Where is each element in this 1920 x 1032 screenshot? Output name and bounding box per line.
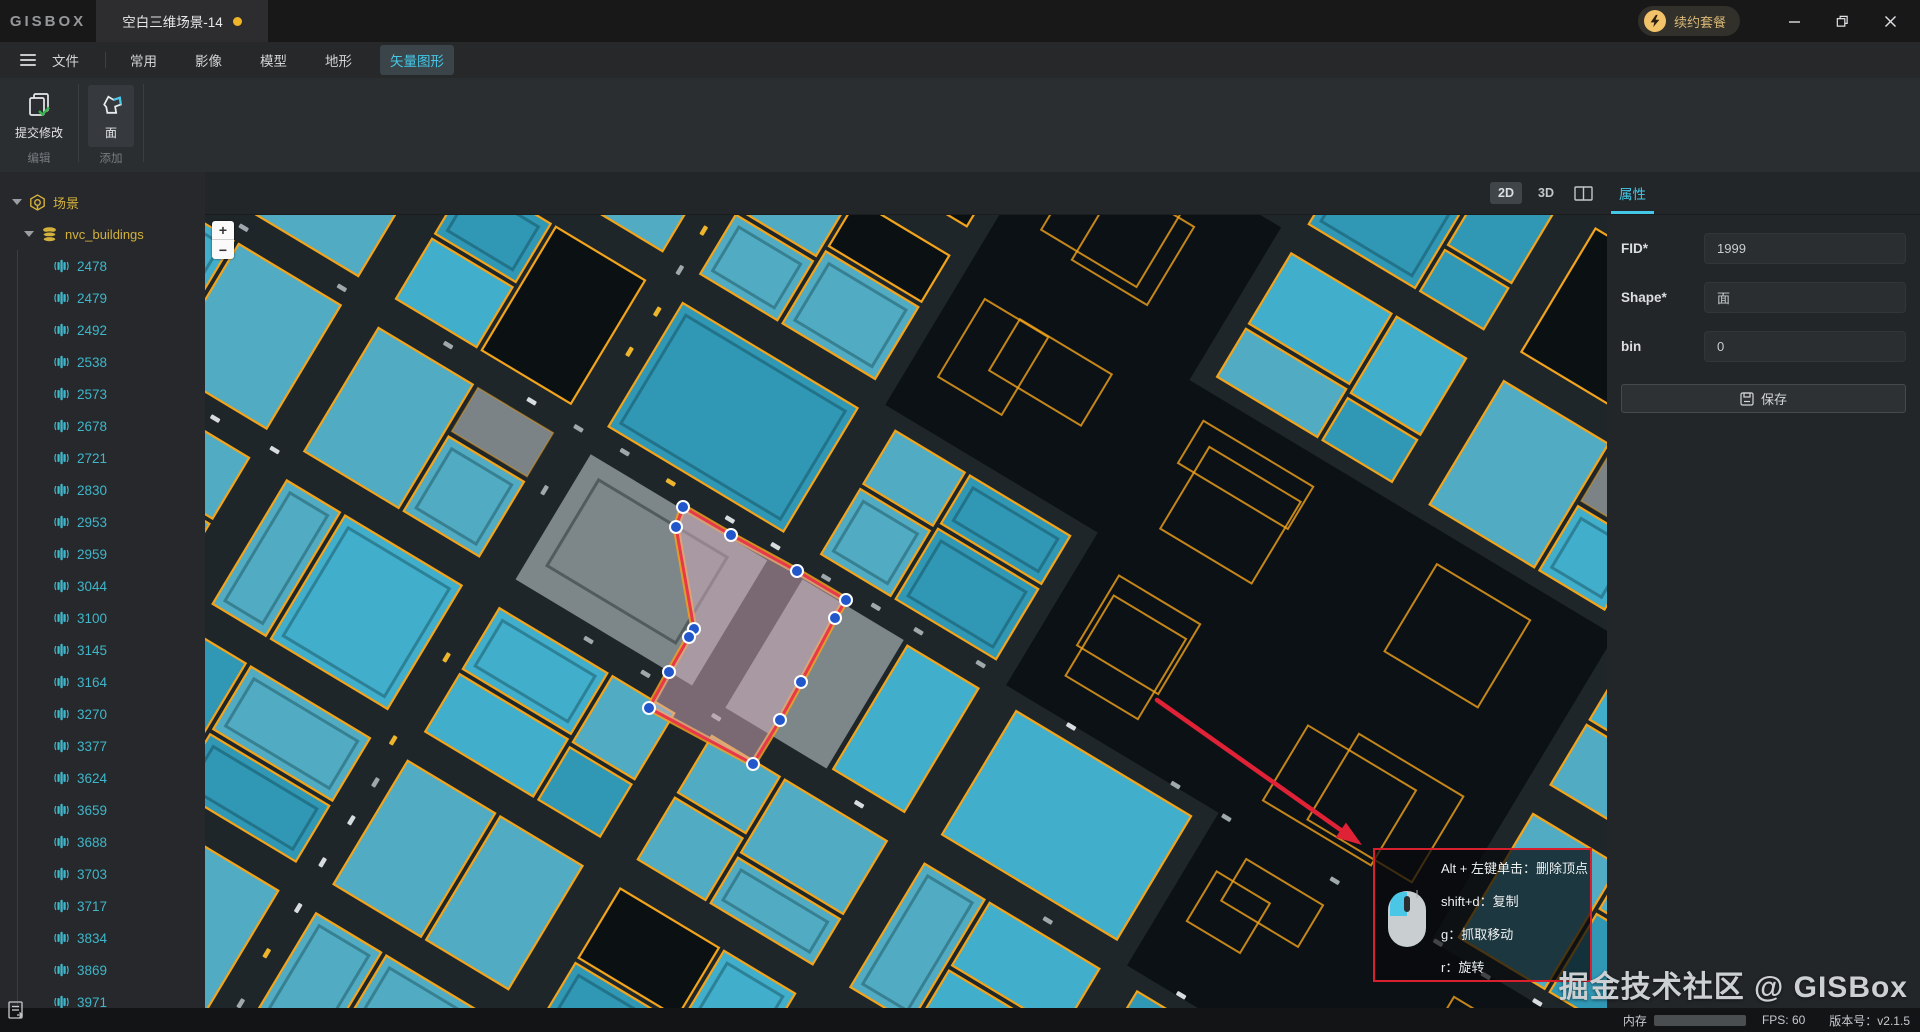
building-icon [54, 610, 69, 626]
building-icon [54, 546, 69, 562]
building-icon [54, 322, 69, 338]
building-icon [54, 674, 69, 690]
menu-bar: 文件 常用影像模型地形矢量图形 [0, 42, 1920, 78]
mode-2d-button[interactable]: 2D [1490, 182, 1522, 204]
feature-item[interactable]: 2953 [0, 506, 205, 538]
feature-item[interactable]: 3100 [0, 602, 205, 634]
vertex-handle[interactable] [663, 666, 675, 678]
zoom-in-button[interactable]: + [212, 221, 234, 240]
field-row-fid: FID* [1607, 233, 1920, 264]
feature-item[interactable]: 2721 [0, 442, 205, 474]
vertex-handle[interactable] [683, 631, 695, 643]
feature-item[interactable]: 2478 [0, 250, 205, 282]
building-icon [54, 866, 69, 882]
add-polygon-label: 面 [105, 124, 117, 141]
scene-box-icon [29, 194, 46, 211]
menu-item-2[interactable]: 模型 [250, 45, 297, 75]
bin-label: bin [1621, 339, 1704, 354]
save-button[interactable]: 保存 [1621, 384, 1906, 413]
close-button[interactable] [1866, 0, 1914, 42]
map-viewport[interactable]: + − Alt + 左键单击：删除顶点shift+d：复制g：抓取移动r：旋转 [205, 215, 1607, 1008]
building-icon [54, 898, 69, 914]
feature-item[interactable]: 2830 [0, 474, 205, 506]
feature-item[interactable]: 3164 [0, 666, 205, 698]
feature-item[interactable]: 2959 [0, 538, 205, 570]
feature-item[interactable]: 2678 [0, 410, 205, 442]
vertex-handle[interactable] [725, 529, 737, 541]
building-icon [54, 482, 69, 498]
building-icon [54, 354, 69, 370]
watermark: 掘金技术社区 @ GISBox [1559, 962, 1908, 1006]
building-icon [54, 738, 69, 754]
properties-panel: FID* Shape* bin 保存 [1607, 215, 1920, 1008]
mode-3d-button[interactable]: 3D [1530, 182, 1562, 204]
building-icon [54, 770, 69, 786]
group-label-edit: 编辑 [11, 150, 67, 166]
status-bar: 内存 FPS: 60 版本号：v2.1.5 [0, 1008, 1920, 1032]
fid-input[interactable] [1704, 233, 1906, 264]
building-icon [54, 386, 69, 402]
building-icon [54, 706, 69, 722]
feature-item[interactable]: 2492 [0, 314, 205, 346]
unsaved-dot-icon [233, 17, 242, 26]
menu-items: 常用影像模型地形矢量图形 [120, 45, 472, 75]
view-strip: 2D 3D 属性 [205, 172, 1920, 215]
map-zoom-control: + − [212, 221, 234, 259]
vertex-handle[interactable] [774, 714, 786, 726]
version-indicator: 版本号：v2.1.5 [1829, 1012, 1910, 1029]
feature-item[interactable]: 3717 [0, 890, 205, 922]
memory-bar [1654, 1015, 1746, 1026]
submit-changes-button[interactable]: 提交修改 [11, 85, 67, 147]
field-row-shape: Shape* [1607, 282, 1920, 313]
menu-item-0[interactable]: 常用 [120, 45, 167, 75]
building-icon [54, 258, 69, 274]
building-icon [54, 834, 69, 850]
building-icon [54, 930, 69, 946]
feature-item[interactable]: 3624 [0, 762, 205, 794]
feature-item[interactable]: 3659 [0, 794, 205, 826]
fps-indicator: FPS: 60 [1762, 1013, 1805, 1027]
hint-line: Alt + 左键单击：删除顶点 [1375, 852, 1590, 885]
feature-item[interactable]: 3869 [0, 954, 205, 986]
scene-tab-title: 空白三维场景-14 [122, 11, 223, 31]
submit-changes-label: 提交修改 [15, 124, 63, 141]
tree-node-dataset-label: nvc_buildings [65, 227, 144, 242]
feature-item[interactable]: 3834 [0, 922, 205, 954]
menu-item-3[interactable]: 地形 [315, 45, 362, 75]
restore-button[interactable] [1818, 0, 1866, 42]
fid-label: FID* [1621, 241, 1704, 256]
building-icon [54, 514, 69, 530]
feature-item[interactable]: 3145 [0, 634, 205, 666]
building-icon [54, 450, 69, 466]
vertex-handle[interactable] [795, 676, 807, 688]
building-icon [54, 802, 69, 818]
building-icon [54, 642, 69, 658]
vertex-handle[interactable] [670, 521, 682, 533]
add-polygon-button[interactable]: 面 [88, 85, 134, 147]
scene-tab[interactable]: 空白三维场景-14 [96, 0, 268, 42]
feature-item[interactable]: 3703 [0, 858, 205, 890]
feature-item[interactable]: 2573 [0, 378, 205, 410]
shape-label: Shape* [1621, 290, 1704, 305]
menu-item-4[interactable]: 矢量图形 [380, 45, 454, 75]
database-icon [41, 226, 58, 243]
hamburger-icon[interactable] [20, 54, 36, 66]
vertex-handle[interactable] [829, 612, 841, 624]
vertex-handle[interactable] [840, 594, 852, 606]
building-icon [54, 578, 69, 594]
minimize-button[interactable] [1770, 0, 1818, 42]
bin-input[interactable] [1704, 331, 1906, 362]
feature-item[interactable]: 2479 [0, 282, 205, 314]
shape-input[interactable] [1704, 282, 1906, 313]
renew-plan-button[interactable]: 续约套餐 [1638, 6, 1740, 36]
notes-panel-icon[interactable] [7, 1000, 26, 1026]
mouse-icon [1387, 890, 1427, 951]
field-row-bin: bin [1607, 331, 1920, 362]
building-icon [54, 418, 69, 434]
lightning-icon [1644, 10, 1666, 32]
menu-file[interactable]: 文件 [44, 46, 87, 74]
tab-properties[interactable]: 属性 [1613, 183, 1652, 203]
feature-item[interactable]: 3688 [0, 826, 205, 858]
vertex-handle[interactable] [747, 758, 759, 770]
tree-node-scene-label: 场景 [53, 193, 79, 212]
vertex-handle[interactable] [677, 501, 689, 513]
gisbox-window: GISBOX 空白三维场景-14 续约套餐 [0, 0, 1920, 1032]
split-view-icon[interactable] [1574, 186, 1593, 201]
zoom-out-button[interactable]: − [212, 240, 234, 259]
vertex-handle[interactable] [643, 702, 655, 714]
tree-node-scene[interactable]: 场景 [0, 186, 205, 218]
building-icon [54, 290, 69, 306]
feature-item[interactable]: 3377 [0, 730, 205, 762]
feature-list: 2478247924922538257326782721283029532959… [0, 250, 205, 1008]
window-controls [1770, 0, 1914, 42]
save-label: 保存 [1761, 389, 1787, 408]
vertex-handle[interactable] [791, 565, 803, 577]
title-bar: GISBOX 空白三维场景-14 续约套餐 [0, 0, 1920, 42]
caret-down-icon[interactable] [12, 199, 22, 205]
ribbon-toolbar: 提交修改 编辑 面 添加 [0, 78, 1920, 172]
caret-down-icon[interactable] [24, 231, 34, 237]
app-logo: GISBOX [0, 0, 96, 42]
feature-item[interactable]: 3971 [0, 986, 205, 1008]
renew-plan-label: 续约套餐 [1674, 12, 1726, 31]
building-icon [54, 962, 69, 978]
feature-item[interactable]: 3044 [0, 570, 205, 602]
memory-label: 内存 [1623, 1012, 1647, 1029]
layer-tree: 场景 nvc_buildings 24782479249225382573267… [0, 172, 205, 1008]
feature-item[interactable]: 2538 [0, 346, 205, 378]
building-icon [54, 994, 69, 1008]
feature-item[interactable]: 3270 [0, 698, 205, 730]
save-icon [1740, 392, 1754, 406]
tree-node-dataset[interactable]: nvc_buildings [0, 218, 205, 250]
menu-item-1[interactable]: 影像 [185, 45, 232, 75]
group-label-add: 添加 [88, 150, 134, 166]
